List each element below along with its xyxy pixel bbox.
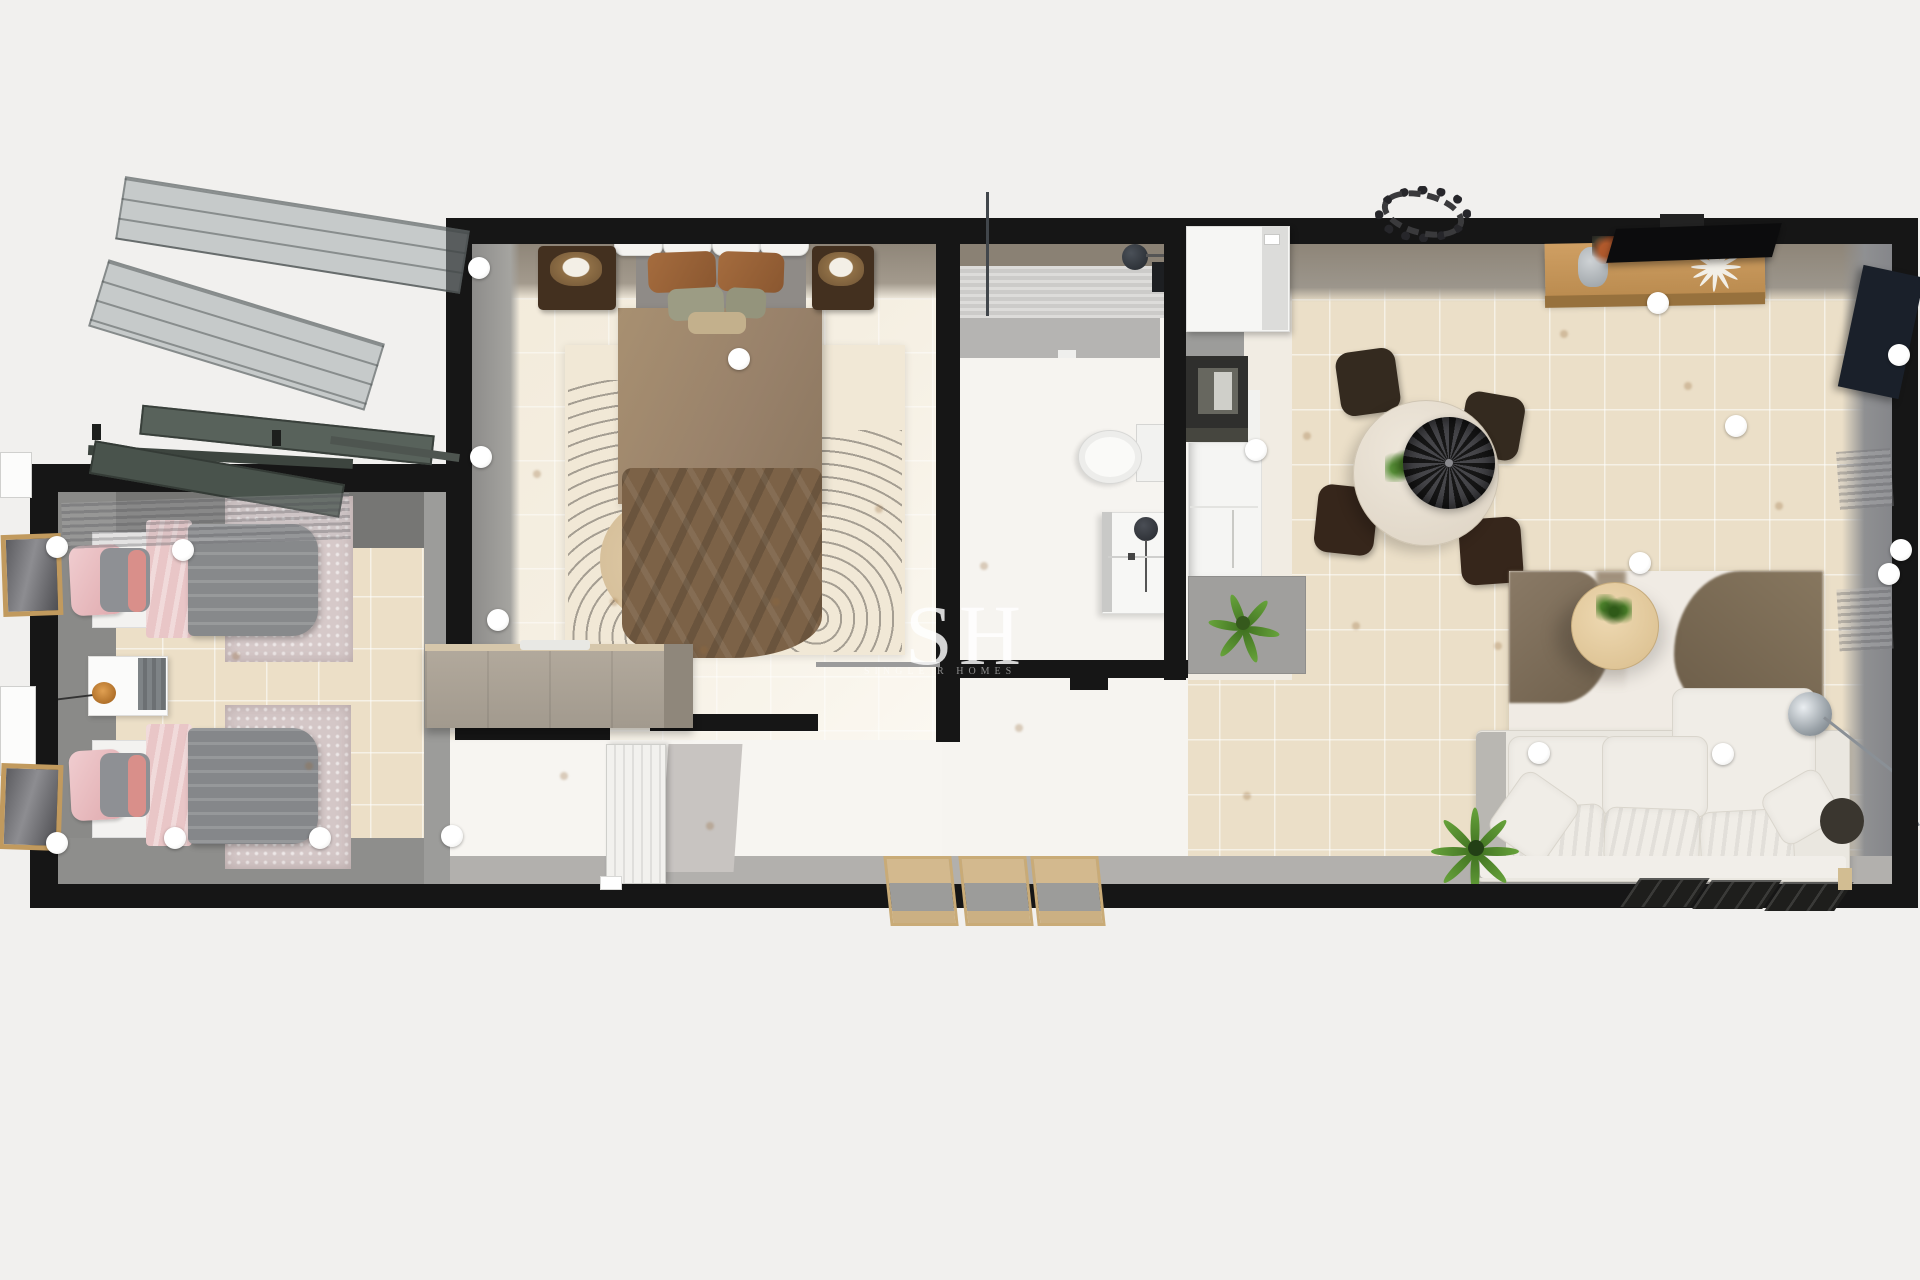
master-bed-throw <box>622 468 822 658</box>
camera-marker[interactable] <box>441 825 463 847</box>
interior-door-sill <box>600 876 622 890</box>
kitchen-cabinet-shadow <box>1186 330 1244 358</box>
floor-speck <box>875 505 883 513</box>
floor-speck <box>1494 642 1502 650</box>
shower-head-icon <box>1122 244 1148 270</box>
wall-bath-bottom-pier <box>1070 660 1108 690</box>
twin-bed-2-duvet <box>188 728 318 844</box>
camera-marker[interactable] <box>1890 539 1912 561</box>
watermark-subtext: SINGLE R HOMES <box>864 666 1016 677</box>
master-window-pane-1 <box>115 176 470 294</box>
camera-marker[interactable] <box>46 832 68 854</box>
kitchen-counter <box>1188 442 1262 578</box>
camera-marker[interactable] <box>46 536 68 558</box>
sink-bowl-icon <box>1134 517 1158 541</box>
interior-door <box>606 744 666 884</box>
wardrobe-tray <box>520 640 590 650</box>
living-top-wall-face <box>1186 244 1892 302</box>
floor-speck <box>980 562 988 570</box>
camera-marker[interactable] <box>1888 344 1910 366</box>
camera-marker[interactable] <box>470 446 492 468</box>
floor-plan-render: SH SINGLE R HOMES <box>0 0 1920 1280</box>
camera-marker[interactable] <box>1878 563 1900 585</box>
kids-window-hinge-1 <box>92 424 101 440</box>
pendant-center-dot <box>1445 459 1453 467</box>
wardrobe-side <box>664 644 693 728</box>
floor-speck <box>1775 502 1783 510</box>
tv-icon <box>1606 223 1782 263</box>
kids-nightstand-decor <box>138 658 166 710</box>
entry-step-3 <box>1030 856 1105 926</box>
right-curtain-2 <box>1836 587 1893 652</box>
master-window-pane-2 <box>88 259 385 410</box>
kitchen-counter-sliver <box>1248 390 1260 442</box>
coffee-table-plant-icon <box>1596 594 1632 626</box>
floor-speck <box>610 598 618 606</box>
camera-marker[interactable] <box>1647 292 1669 314</box>
basket-icon-right <box>818 252 864 286</box>
floor-lamp-globe-icon <box>1788 692 1832 736</box>
camera-marker[interactable] <box>172 539 194 561</box>
master-pillow-rust-right <box>717 251 784 293</box>
basket-icon-left <box>550 252 602 286</box>
entry-step-2 <box>958 856 1033 926</box>
louver-endcap <box>1838 868 1852 890</box>
wall-bath-bottom-2 <box>1104 660 1188 678</box>
floor-speck <box>1684 382 1692 390</box>
sink-faucet <box>1145 540 1147 592</box>
wall-bath-kitchen-divider <box>1164 218 1186 680</box>
side-shadow-disc <box>1820 798 1864 844</box>
toilet-bowl <box>1078 430 1142 484</box>
sink-faucet-bar <box>1108 556 1164 558</box>
floor-speck <box>1303 432 1311 440</box>
floor-speck <box>1560 330 1568 338</box>
camera-marker[interactable] <box>164 827 186 849</box>
floor-speck <box>700 646 708 654</box>
floor-speck <box>706 822 714 830</box>
floor-speck <box>305 762 313 770</box>
twin-bed-1-bolster <box>128 550 146 612</box>
camera-marker[interactable] <box>468 257 490 279</box>
floor-speck <box>772 598 780 606</box>
wardrobe <box>425 644 693 728</box>
camera-marker[interactable] <box>1528 742 1550 764</box>
sink-handle <box>1128 553 1135 560</box>
camera-marker[interactable] <box>309 827 331 849</box>
floor-speck <box>1243 792 1251 800</box>
amber-dish-icon <box>92 682 116 704</box>
kitchen-counter-handle <box>1232 510 1234 568</box>
floor-speck <box>232 652 240 660</box>
entry-step-1 <box>883 856 958 926</box>
oven-glass <box>1214 372 1232 410</box>
oven-ledge <box>1186 428 1248 442</box>
shower-floor <box>960 266 1168 318</box>
floor-speck <box>1015 724 1023 732</box>
left-exterior-door-top <box>0 452 32 498</box>
sofa-front-slab <box>1480 856 1846 878</box>
floor-speck <box>533 470 541 478</box>
floor-plant-icon <box>1430 802 1520 892</box>
shower-glass-panel <box>986 192 989 316</box>
camera-marker[interactable] <box>487 609 509 631</box>
twin-bed-2-bolster <box>128 755 146 817</box>
floor-speck <box>560 772 568 780</box>
kitchen-counter-seam <box>1190 506 1258 508</box>
sofa-back-cushion-2 <box>1602 736 1708 818</box>
door-swing-shadow <box>660 744 743 872</box>
kitchen-cabinet-handle <box>1264 234 1280 245</box>
floor-speck <box>1352 622 1360 630</box>
right-curtain-1 <box>1836 448 1894 510</box>
camera-marker[interactable] <box>1712 743 1734 765</box>
master-pillow-lumbar <box>688 312 746 334</box>
camera-marker[interactable] <box>728 348 750 370</box>
kitchen-plant-icon <box>1206 588 1282 660</box>
camera-marker[interactable] <box>1629 552 1651 574</box>
sink-vanity-shade <box>1102 512 1112 612</box>
camera-marker[interactable] <box>1245 439 1267 461</box>
camera-marker[interactable] <box>1725 415 1747 437</box>
kids-window-hinge-2 <box>272 430 281 446</box>
shower-step-marker <box>1058 350 1076 358</box>
